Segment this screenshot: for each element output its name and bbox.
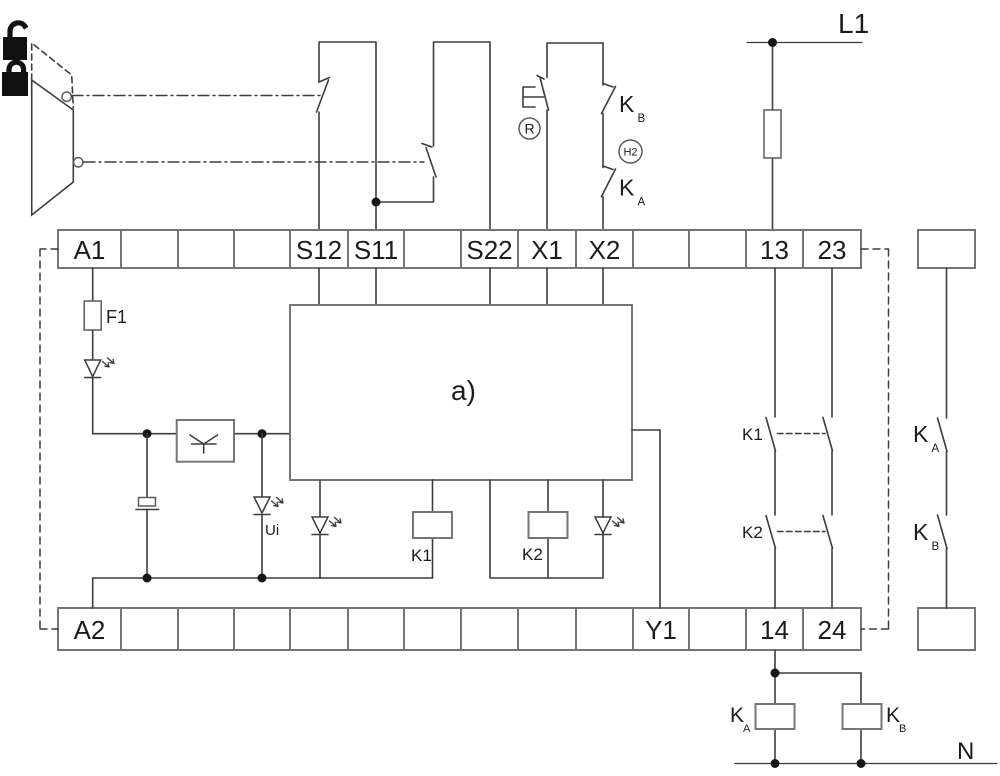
ka-label-sub: A	[638, 197, 646, 209]
guard-door-symbol	[32, 43, 83, 215]
aux-top-box	[918, 230, 975, 268]
door-roller-1	[62, 92, 71, 101]
terminal-cell	[234, 230, 290, 268]
terminal-label-S11: S11	[354, 235, 398, 265]
bottom-terminal-strip: A2Y11424	[58, 608, 861, 650]
ka-aux-label-sub: A	[932, 443, 940, 455]
k2-coil-label: K2	[522, 545, 543, 564]
ka-label-k: K	[619, 175, 635, 201]
kb-coil-label-k: K	[886, 704, 900, 727]
aux-contactor-column: K A K B	[913, 230, 975, 650]
contactor-coils: K A K B N	[730, 650, 997, 768]
enclosure-dash-right	[861, 249, 889, 629]
kb-label-sub: B	[638, 113, 646, 125]
unlocked-padlock-icon	[3, 23, 27, 60]
k1-coil-label: K1	[411, 546, 432, 565]
terminal-cell	[178, 608, 234, 650]
terminal-cell	[234, 608, 290, 650]
k1-contact-label: K1	[742, 425, 763, 444]
terminal-cell	[633, 230, 689, 268]
voltage-regulator	[177, 420, 234, 462]
internal-voltage-led: Ui	[254, 434, 283, 578]
wiring-diagram: R H2 K B K A L1 A1S12S11S22X1X21323 A2Y1…	[0, 0, 1000, 776]
terminal-label-X2: X2	[589, 235, 621, 265]
terminal-cell	[461, 608, 518, 650]
k1-contact-pole1	[766, 418, 776, 452]
module-input-wires	[319, 268, 603, 305]
terminal-label-S12: S12	[296, 235, 342, 265]
k1-coil: K1	[411, 480, 452, 578]
output-contacts: K1 K2	[742, 268, 833, 608]
k2-contact-pole1	[766, 516, 776, 549]
terminal-cell	[404, 608, 461, 650]
supply-led-icon	[85, 358, 114, 378]
h2-label: H2	[623, 147, 637, 159]
a2-rail	[93, 578, 433, 608]
terminal-label-14: 14	[760, 615, 789, 645]
k2-contact-label: K2	[742, 523, 763, 542]
terminal-cell	[689, 230, 746, 268]
safety-contact-s22-circuit	[372, 42, 491, 230]
safety-contact-s12-circuit	[317, 42, 377, 230]
terminal-label-X1: X1	[531, 235, 563, 265]
terminal-cell	[178, 230, 234, 268]
top-terminal-strip: A1S12S11S22X1X21323	[58, 230, 861, 268]
terminal-cell	[121, 230, 178, 268]
terminal-cell	[290, 608, 348, 650]
kb-aux-label-sub: B	[932, 541, 940, 553]
module-label: a)	[451, 375, 476, 406]
terminal-label-24: 24	[818, 615, 847, 645]
safety-contact-2	[422, 144, 436, 178]
ka-aux-label-k: K	[913, 421, 929, 447]
kb-label-k: K	[619, 91, 635, 117]
terminal-label-23: 23	[818, 235, 847, 265]
reset-contact	[537, 76, 549, 111]
fuse-f1	[84, 301, 101, 330]
reset-label: R	[524, 121, 534, 137]
k2-circuit: K2	[490, 480, 624, 578]
terminal-cell	[348, 608, 404, 650]
kb-coil	[843, 704, 882, 729]
n-label: N	[957, 738, 974, 765]
terminal-label-S22: S22	[466, 235, 512, 265]
terminal-label-13: 13	[760, 235, 789, 265]
supply-l1: L1	[747, 8, 869, 230]
kb-feedback-contact	[602, 84, 616, 114]
terminal-cell	[518, 608, 576, 650]
y1-wire	[632, 430, 660, 608]
terminal-label-Y1: Y1	[645, 615, 677, 645]
terminal-cell	[689, 608, 746, 650]
capacitor	[136, 434, 159, 578]
terminal-cell	[576, 608, 633, 650]
pushbutton-actuator-icon	[523, 87, 544, 107]
reset-button-circuit: R	[519, 43, 603, 230]
enclosure-dash-left	[40, 249, 58, 629]
channel1-led	[312, 480, 341, 578]
a1-supply-branch: F1	[84, 268, 127, 434]
door-roller-2	[74, 158, 83, 167]
terminal-cell	[404, 230, 461, 268]
feedback-branch: H2 K B K A	[602, 43, 646, 230]
terminal-label-A2: A2	[74, 615, 106, 645]
ui-label: Ui	[265, 522, 279, 539]
f1-label: F1	[106, 307, 127, 327]
kb-coil-label-sub: B	[899, 723, 906, 735]
line-fuse	[764, 110, 781, 158]
terminal-cell	[121, 608, 178, 650]
safety-contact-1	[317, 78, 330, 113]
module-box: a)	[290, 305, 632, 480]
terminal-label-A1: A1	[74, 235, 106, 265]
ka-coil	[756, 704, 795, 729]
ka-coil-label-sub: A	[743, 723, 751, 735]
kb-aux-label-k: K	[913, 519, 929, 545]
l1-label: L1	[838, 8, 869, 39]
aux-bottom-box	[918, 608, 975, 650]
ka-feedback-contact	[602, 166, 616, 197]
k2-coil: K2	[522, 480, 568, 578]
ka-coil-label-k: K	[730, 704, 744, 727]
locked-padlock-icon	[2, 62, 28, 96]
channel2-led	[595, 480, 624, 578]
